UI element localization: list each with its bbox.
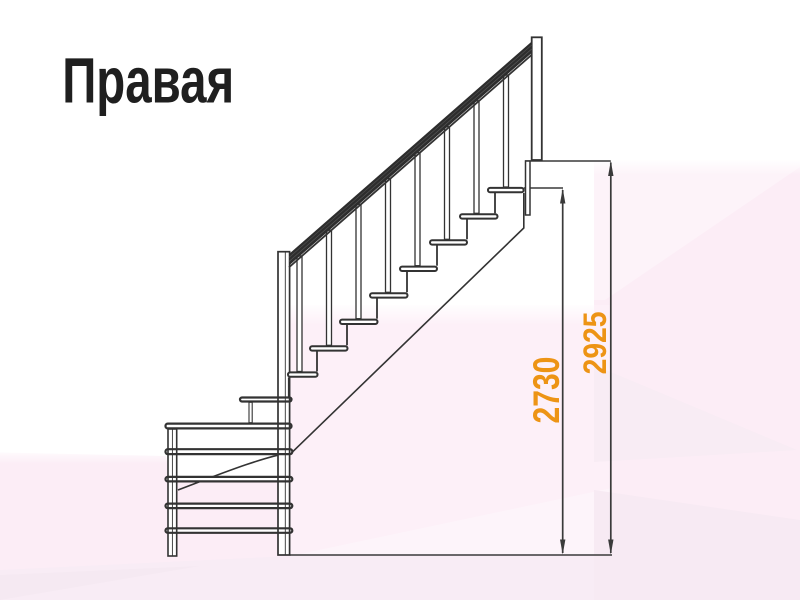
svg-text:Правая: Правая (62, 45, 234, 117)
svg-text:2730: 2730 (526, 357, 567, 424)
svg-text:2925: 2925 (577, 312, 613, 375)
